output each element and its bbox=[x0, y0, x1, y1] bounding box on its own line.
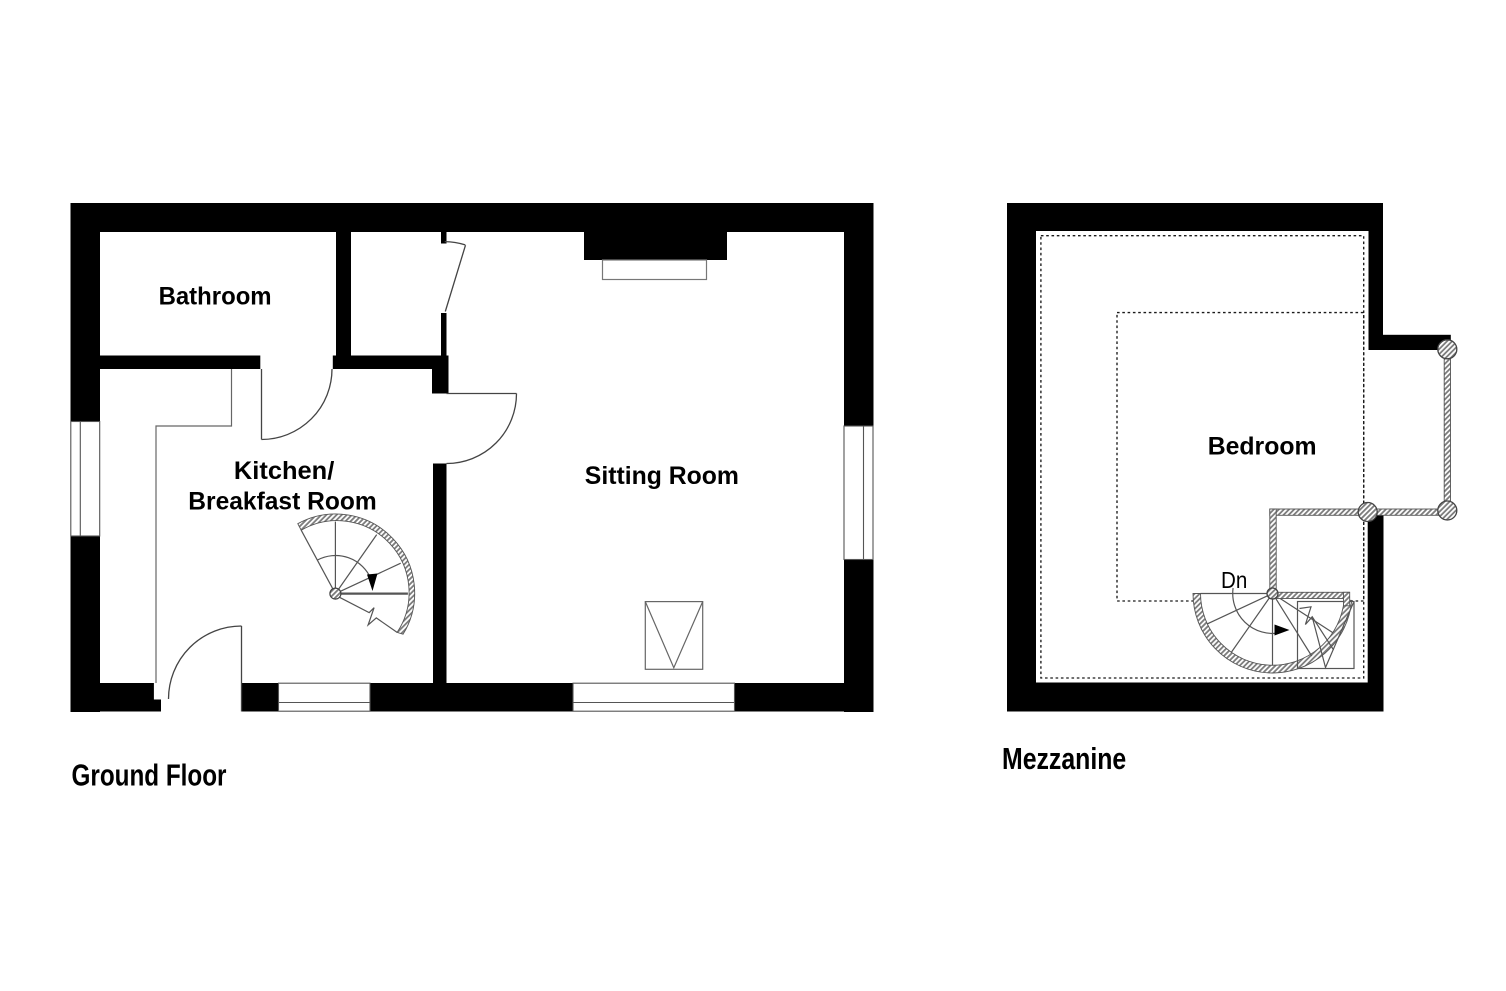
svg-text:Ground Floor: Ground Floor bbox=[72, 757, 227, 792]
svg-text:Mezzanine: Mezzanine bbox=[1002, 741, 1126, 776]
svg-text:Bathroom: Bathroom bbox=[159, 283, 272, 311]
svg-text:Kitchen/: Kitchen/ bbox=[234, 457, 334, 485]
svg-text:Breakfast Room: Breakfast Room bbox=[188, 488, 376, 516]
svg-text:Sitting Room: Sitting Room bbox=[585, 462, 739, 490]
svg-text:Bedroom: Bedroom bbox=[1208, 433, 1317, 461]
svg-text:Dn: Dn bbox=[1221, 567, 1247, 593]
